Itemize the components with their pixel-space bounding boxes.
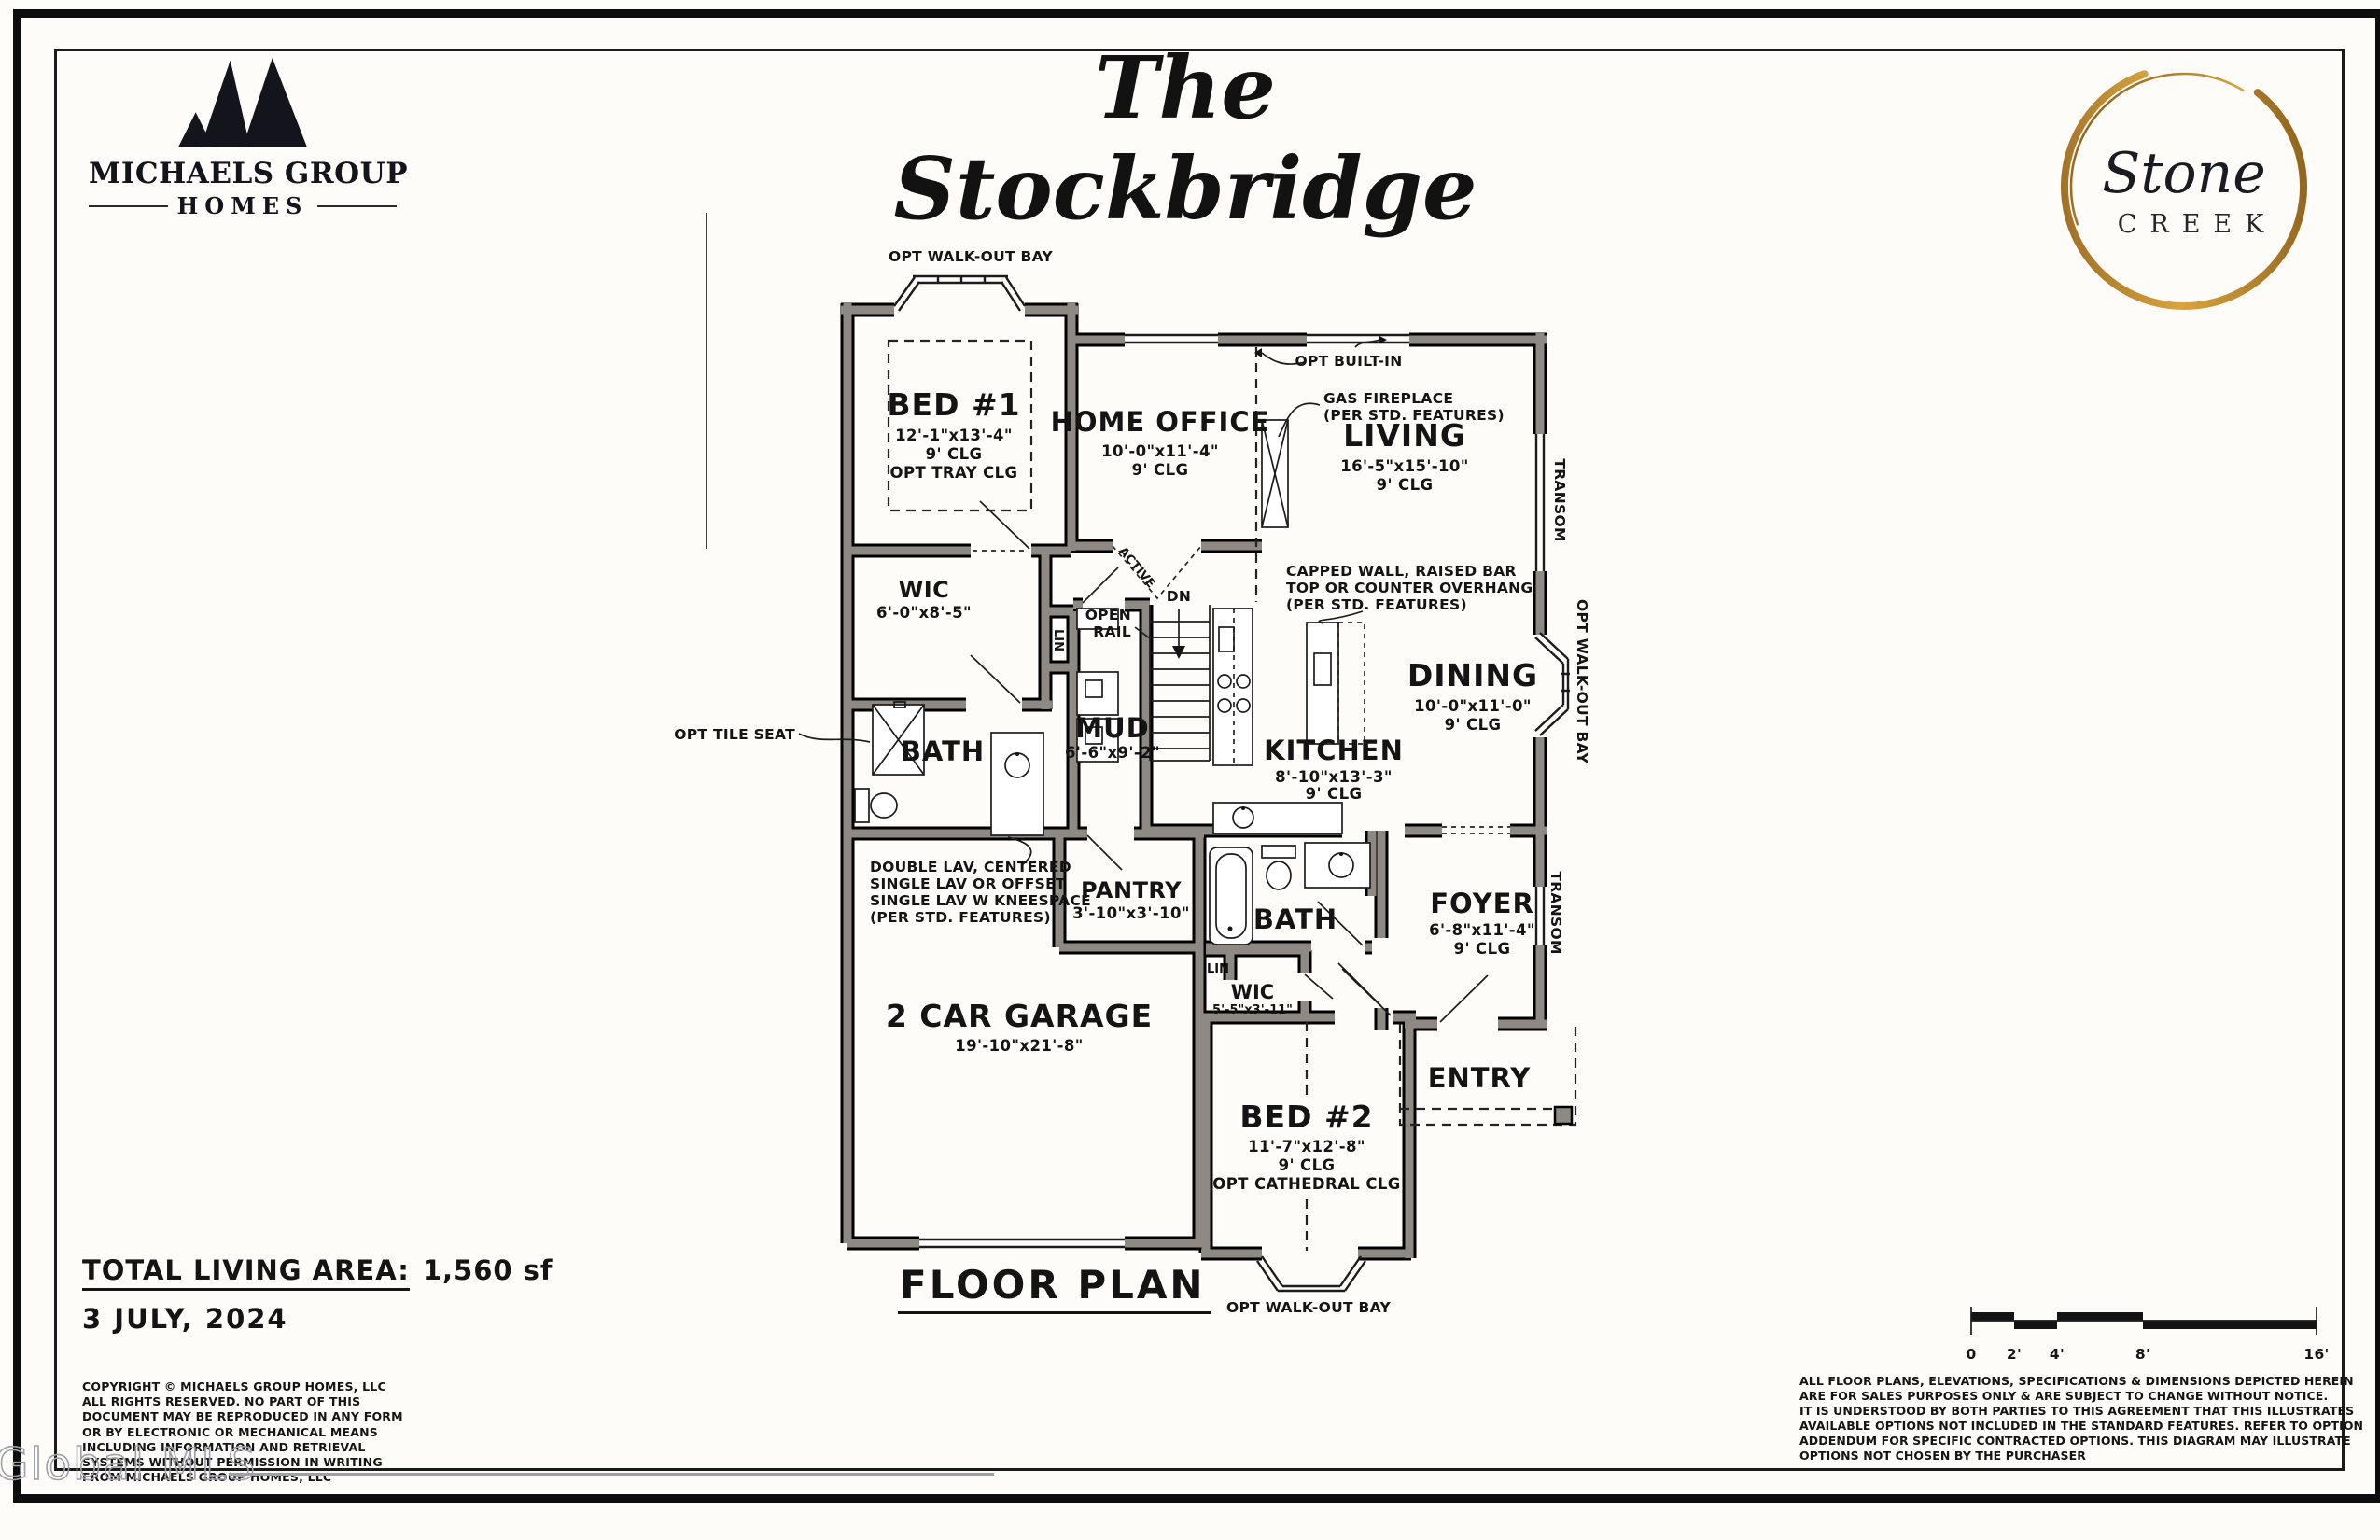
annot-active-door: ACTIVE [1115, 544, 1157, 591]
room-dim-bed2: 11'-7"x12'-8" [1248, 1138, 1365, 1155]
scale-tick-4: 4' [2050, 1346, 2065, 1363]
porch-post [1555, 1107, 1572, 1124]
annot-gas-fireplace-2: (PER STD. FEATURES) [1323, 407, 1505, 424]
scale-tick-0: 0 [1966, 1346, 1976, 1363]
annot-open-rail-1: OPEN [1085, 607, 1131, 623]
copyright-line: ALL RIGHTS RESERVED. NO PART OF THIS [82, 1394, 403, 1409]
disclaimer-line: OPTIONS NOT CHOSEN BY THE PURCHASER [1799, 1449, 2363, 1463]
annot-walk-out-bay-right: OPT WALK-OUT BAY [1574, 599, 1590, 763]
room-clg-foyer: 9' CLG [1454, 940, 1511, 958]
room-dim-garage: 19'-10"x21'-8" [955, 1037, 1084, 1055]
annot-double-lav-3: SINGLE LAV W KNEESPACE [870, 892, 1091, 909]
room-label-home-office: HOME OFFICE [1051, 406, 1270, 438]
opt-tray-ceiling-outline [889, 341, 1031, 511]
room-label-wic2: WIC [1231, 981, 1274, 1003]
room-dim-wic1: 6'-0"x8'-5" [876, 604, 972, 622]
disclaimer-block: ALL FLOOR PLANS, ELEVATIONS, SPECIFICATI… [1799, 1374, 2363, 1463]
total-living-area: TOTAL LIVING AREA:1,560 sf 3 JULY, 2024 [82, 1254, 553, 1335]
annot-open-rail-2: RAIL [1093, 623, 1131, 640]
room-dim-kitchen: 8'-10"x13'-3" [1275, 768, 1393, 786]
toilet-1 [855, 789, 897, 822]
tub [1210, 847, 1253, 945]
kitchen-island [1307, 623, 1365, 744]
annot-capped-wall-1: CAPPED WALL, RAISED BAR [1286, 563, 1517, 580]
floor-plan-sheet: MICHAELS GROUP HOMES The Stockbridge Sto… [0, 0, 2380, 1540]
room-clg-home-office: 9' CLG [1132, 461, 1189, 479]
annot-capped-wall-3: (PER STD. FEATURES) [1286, 596, 1467, 613]
room-dim-mud: 6'-6"x9'-2" [1065, 744, 1160, 762]
annot-transom-foyer: TRANSOM [1547, 871, 1564, 954]
room-label-wic1: WIC [899, 577, 950, 603]
stairs [1150, 605, 1210, 761]
room-clg-bed1: 9' CLG [926, 445, 983, 463]
disclaimer-line: ADDENDUM FOR SPECIFIC CONTRACTED OPTIONS… [1799, 1434, 2363, 1449]
room-label-dining: DINING [1407, 657, 1538, 693]
room-label-garage: 2 CAR GARAGE [886, 998, 1153, 1034]
annot-gas-fireplace-1: GAS FIREPLACE [1323, 390, 1453, 407]
vanity-1 [991, 733, 1043, 835]
annot-transom-living: TRANSOM [1551, 458, 1568, 541]
room-label-foyer: FOYER [1430, 888, 1534, 919]
room-clg-dining: 9' CLG [1445, 716, 1502, 734]
disclaimer-line: IT IS UNDERSTOOD BY BOTH PARTIES TO THIS… [1799, 1404, 2363, 1419]
scale-tick-8: 8' [2135, 1346, 2150, 1363]
room-dim-living: 16'-5"x15'-10" [1340, 457, 1469, 475]
area-label: TOTAL LIVING AREA: [82, 1254, 410, 1291]
annot-walk-out-bay-bottom: OPT WALK-OUT BAY [1226, 1299, 1391, 1316]
kitchen-sink-counter [1213, 803, 1342, 833]
room-opt-bed2: OPT CATHEDRAL CLG [1212, 1175, 1400, 1193]
room-label-entry: ENTRY [1428, 1062, 1532, 1094]
room-dim-home-office: 10'-0"x11'-4" [1101, 442, 1219, 460]
disclaimer-line: ALL FLOOR PLANS, ELEVATIONS, SPECIFICATI… [1799, 1374, 2363, 1389]
room-label-lin1: LIN [1051, 629, 1065, 651]
room-label-bed1: BED #1 [887, 386, 1020, 423]
room-clg-living: 9' CLG [1377, 476, 1434, 494]
annot-double-lav-1: DOUBLE LAV, CENTERED [870, 859, 1071, 875]
room-label-bed2: BED #2 [1239, 1099, 1373, 1135]
room-dim-bed1: 12'-1"x13'-4" [895, 427, 1013, 444]
room-label-bath2: BATH [1253, 903, 1337, 935]
annot-double-lav-2: SINGLE LAV OR OFFSET [870, 875, 1066, 892]
watermark: Global MLS [0, 1439, 257, 1491]
scale-tick-2: 2' [2007, 1346, 2022, 1363]
annot-opt-tile-seat: OPT TILE SEAT [674, 726, 795, 743]
plan-date: 3 JULY, 2024 [82, 1303, 553, 1335]
disclaimer-line: AVAILABLE OPTIONS NOT INCLUDED IN THE ST… [1799, 1419, 2363, 1434]
room-label-pantry: PANTRY [1081, 877, 1182, 903]
room-dim-foyer: 6'-8"x11'-4" [1429, 921, 1535, 939]
annot-double-lav-4: (PER STD. FEATURES) [870, 909, 1051, 926]
room-clg-kitchen: 9' CLG [1306, 785, 1363, 803]
room-clg-bed2: 9' CLG [1279, 1156, 1336, 1174]
room-label-bath1: BATH [901, 735, 985, 767]
disclaimer-line: ARE FOR SALES PURPOSES ONLY & ARE SUBJEC… [1799, 1389, 2363, 1404]
sheet-label: FLOOR PLAN [898, 1262, 1211, 1314]
room-dim-wic2: 5'-5"x3'-11" [1212, 1003, 1293, 1017]
scale-bar: 0 2' 4' 8' 16' [1966, 1307, 2329, 1363]
vanity-2 [1305, 843, 1370, 888]
watermark-rule [229, 1473, 994, 1476]
annot-walk-out-bay-top: OPT WALK-OUT BAY [889, 248, 1053, 265]
room-opt-bed1: OPT TRAY CLG [890, 464, 1018, 482]
kitchen-counter [1213, 609, 1253, 765]
copyright-line: COPYRIGHT © MICHAELS GROUP HOMES, LLC [82, 1379, 403, 1394]
copyright-line: OR BY ELECTRONIC OR MECHANICAL MEANS [82, 1425, 403, 1440]
annot-capped-wall-2: TOP OR COUNTER OVERHANG [1286, 580, 1533, 596]
copyright-line: DOCUMENT MAY BE REPRODUCED IN ANY FORM [82, 1409, 403, 1424]
scale-tick-16: 16' [2303, 1346, 2329, 1363]
room-label-mud: MUD [1075, 712, 1149, 744]
room-label-lin2: LIN [1207, 962, 1229, 976]
toilet-2 [1262, 846, 1295, 889]
room-dim-dining: 10'-0"x11'-0" [1414, 697, 1532, 715]
room-label-kitchen: KITCHEN [1264, 735, 1404, 766]
annot-opt-built-in: OPT BUILT-IN [1295, 353, 1402, 370]
annot-down: DN [1167, 588, 1191, 605]
area-value: 1,560 sf [423, 1254, 553, 1286]
